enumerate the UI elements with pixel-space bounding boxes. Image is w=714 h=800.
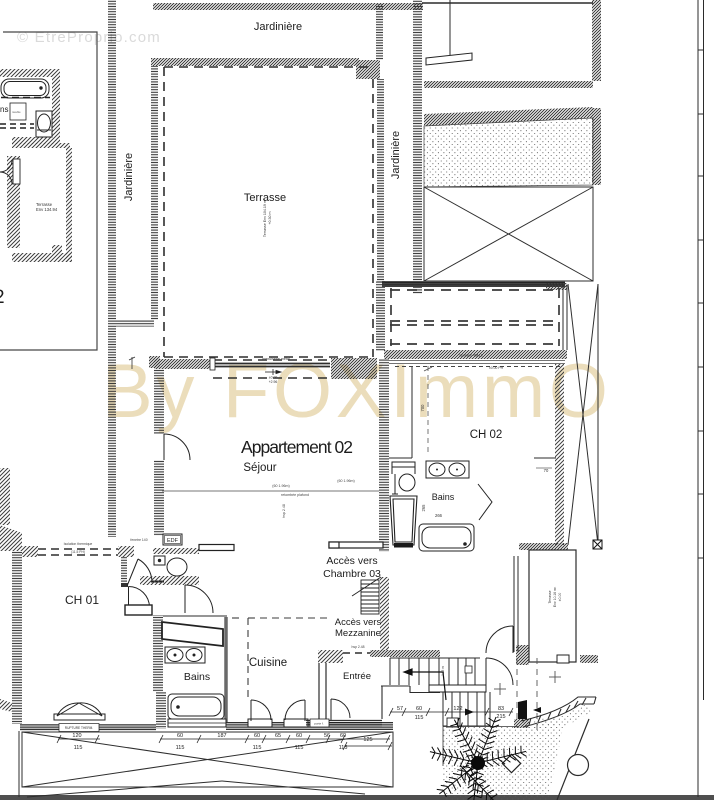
svg-text:Env 134.94: Env 134.94: [36, 207, 58, 212]
svg-text:(60 1.96m): (60 1.96m): [272, 484, 289, 488]
svg-text:Terrasse Env 104.19 m²: Terrasse Env 104.19 m²: [263, 198, 267, 237]
svg-text:65: 65: [275, 733, 281, 739]
svg-text:115: 115: [176, 745, 185, 751]
svg-text:+0.30 m: +0.30 m: [268, 211, 272, 224]
svg-text:Jardinière: Jardinière: [254, 21, 302, 33]
svg-text:Isolation thermique: Isolation thermique: [64, 542, 93, 546]
svg-text:porte f.: porte f.: [314, 722, 324, 726]
svg-text:Chambre 03: Chambre 03: [323, 568, 381, 580]
svg-text:±0.00 PH: ±0.00 PH: [489, 366, 504, 370]
svg-text:1.23 m: 1.23 m: [441, 666, 445, 676]
svg-text:meuble: meuble: [12, 110, 21, 114]
svg-text:700: 700: [420, 404, 425, 412]
svg-text:Env 10.16 m²: Env 10.16 m²: [553, 586, 557, 607]
svg-text:CH 02: CH 02: [470, 429, 503, 441]
svg-text:Mezzanine: Mezzanine: [335, 628, 381, 639]
svg-text:115: 115: [339, 745, 348, 751]
svg-text:(60 1.96m): (60 1.96m): [337, 479, 354, 483]
svg-text:57: 57: [397, 706, 403, 712]
svg-text:ns: ns: [0, 105, 8, 114]
svg-text:120: 120: [72, 733, 81, 739]
svg-text:Entrée: Entrée: [343, 671, 371, 682]
svg-text:CH 01: CH 01: [65, 593, 99, 607]
svg-text:hsp 2.48: hsp 2.48: [351, 645, 364, 649]
svg-text:Accès vers: Accès vers: [326, 555, 377, 567]
svg-text:EDF: EDF: [167, 538, 179, 544]
svg-text:+2.96: +2.96: [269, 380, 278, 384]
svg-text:125: 125: [363, 737, 372, 743]
svg-text:60: 60: [296, 733, 302, 739]
svg-text:±0.00: ±0.00: [269, 376, 278, 380]
svg-text:Bains: Bains: [184, 671, 210, 683]
svg-text:(11.5 PH): (11.5 PH): [71, 550, 85, 554]
svg-text:187: 187: [217, 733, 226, 739]
svg-text:215: 215: [496, 714, 505, 720]
svg-text:retombée plafond: retombée plafond: [281, 493, 309, 497]
svg-text:menuiserie métal: menuiserie métal: [262, 357, 290, 361]
svg-text:Bains: Bains: [432, 492, 455, 502]
svg-text:115: 115: [253, 745, 262, 751]
svg-text:Séjour: Séjour: [243, 462, 276, 474]
svg-text:56: 56: [324, 733, 330, 739]
svg-text:265: 265: [421, 504, 426, 512]
svg-text:115: 115: [295, 745, 304, 751]
svg-text:Terrasse: Terrasse: [548, 590, 552, 603]
svg-text:RUPTURE THERM.: RUPTURE THERM.: [65, 726, 94, 730]
svg-text:122: 122: [453, 706, 462, 712]
svg-text:83: 83: [498, 706, 504, 712]
svg-text:±0.00: ±0.00: [558, 593, 562, 602]
svg-text:Isolation+BA13: Isolation+BA13: [460, 354, 483, 358]
svg-text:115: 115: [74, 745, 83, 751]
svg-text:60: 60: [254, 733, 260, 739]
svg-text:60: 60: [416, 706, 422, 712]
svg-text:Accès vers: Accès vers: [335, 617, 382, 628]
svg-text:Jardinière: Jardinière: [390, 131, 402, 179]
svg-text:115: 115: [415, 715, 424, 721]
svg-text:60: 60: [340, 733, 346, 739]
svg-text:266: 266: [435, 513, 443, 518]
svg-text:fenetre 140: fenetre 140: [130, 538, 147, 542]
svg-text:Cuisine: Cuisine: [249, 657, 287, 669]
svg-text:70: 70: [544, 468, 549, 473]
svg-text:2: 2: [0, 287, 5, 308]
svg-text:Jardinière: Jardinière: [123, 153, 135, 201]
svg-text:Appartement 02: Appartement 02: [241, 437, 353, 457]
svg-text:hsp 2.48: hsp 2.48: [282, 504, 286, 518]
svg-text:60: 60: [177, 733, 183, 739]
